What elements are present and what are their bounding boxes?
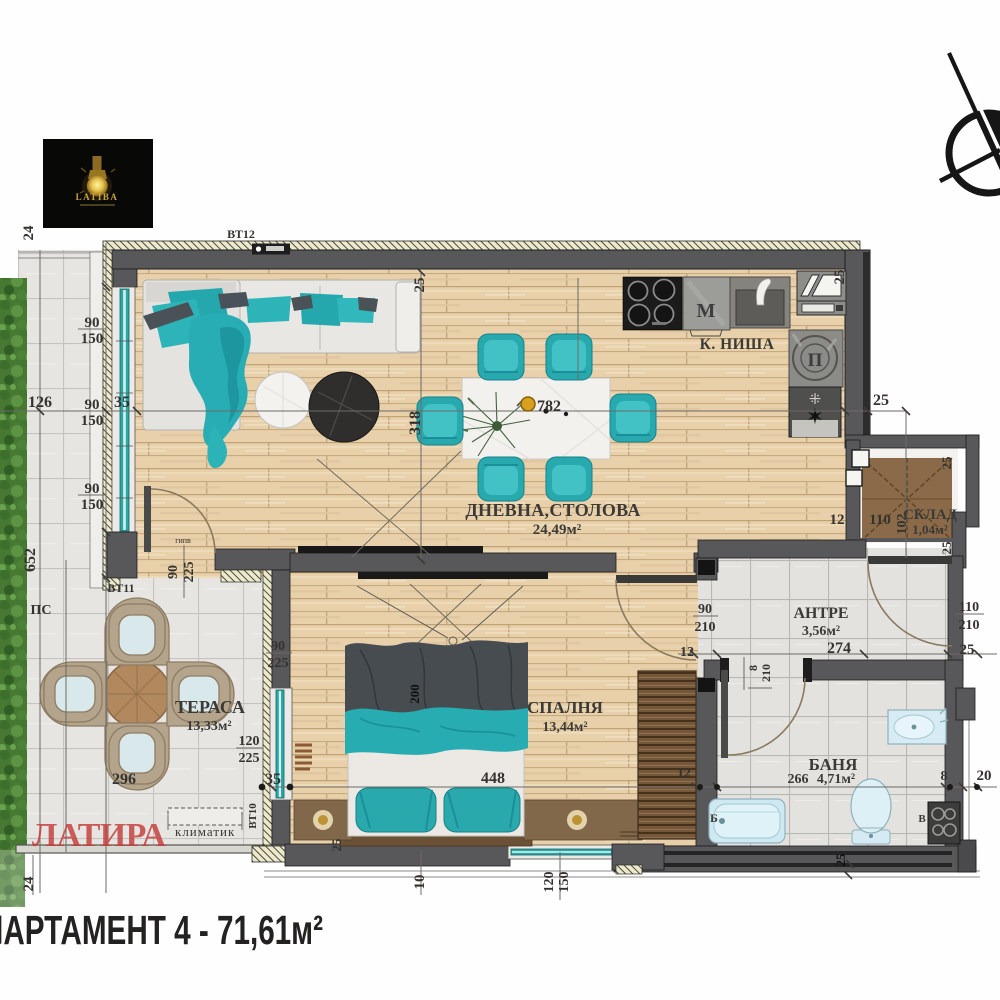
svg-text:652: 652 bbox=[22, 548, 39, 572]
svg-text:24,49м²: 24,49м² bbox=[533, 522, 582, 538]
svg-text:В: В bbox=[918, 813, 926, 825]
svg-text:448: 448 bbox=[481, 770, 505, 787]
svg-text:120: 120 bbox=[542, 872, 557, 893]
svg-text:225: 225 bbox=[239, 751, 260, 766]
svg-text:225: 225 bbox=[182, 562, 197, 583]
svg-text:25: 25 bbox=[412, 278, 428, 293]
svg-text:318: 318 bbox=[407, 411, 424, 435]
svg-text:200: 200 bbox=[407, 684, 422, 704]
svg-text:25: 25 bbox=[939, 541, 954, 555]
svg-text:274: 274 bbox=[827, 640, 851, 657]
svg-text:АНТРЕ: АНТРЕ bbox=[793, 605, 848, 622]
svg-text:90: 90 bbox=[698, 602, 712, 617]
svg-text:25: 25 bbox=[833, 853, 848, 867]
svg-text:120: 120 bbox=[239, 734, 260, 749]
svg-text:12: 12 bbox=[677, 766, 691, 781]
svg-text:782: 782 bbox=[537, 398, 561, 415]
svg-text:35: 35 bbox=[114, 394, 130, 411]
svg-text:ЛАТИРА: ЛАТИРА bbox=[32, 817, 170, 854]
svg-text:8: 8 bbox=[941, 769, 948, 784]
svg-text:25: 25 bbox=[960, 642, 975, 658]
svg-text:90: 90 bbox=[85, 481, 100, 497]
svg-text:150: 150 bbox=[557, 872, 572, 893]
svg-text:110: 110 bbox=[959, 600, 979, 615]
svg-text:90: 90 bbox=[85, 315, 100, 331]
svg-text:150: 150 bbox=[81, 413, 104, 429]
svg-text:20: 20 bbox=[977, 768, 992, 784]
svg-text:126: 126 bbox=[28, 394, 52, 411]
svg-text:3,56м²: 3,56м² bbox=[802, 624, 840, 639]
svg-text:✶: ✶ bbox=[806, 404, 824, 429]
svg-text:10: 10 bbox=[412, 875, 428, 890]
svg-text:13,33м²: 13,33м² bbox=[186, 719, 231, 734]
svg-text:150: 150 bbox=[81, 497, 104, 513]
svg-text:25: 25 bbox=[832, 270, 848, 285]
svg-text:LATIBA: LATIBA bbox=[76, 192, 119, 202]
svg-text:М: М bbox=[697, 300, 716, 322]
svg-text:ВТ11: ВТ11 bbox=[107, 581, 134, 595]
svg-text:296: 296 bbox=[112, 771, 136, 788]
svg-text:ПС: ПС bbox=[31, 603, 52, 618]
svg-text:ВТ10: ВТ10 bbox=[247, 803, 259, 829]
svg-text:225: 225 bbox=[268, 656, 289, 671]
svg-text:ДНЕВНА,СТОЛОВА: ДНЕВНА,СТОЛОВА bbox=[465, 500, 640, 520]
svg-text:ВТ12: ВТ12 bbox=[227, 227, 255, 241]
svg-text:ТЕРАСА: ТЕРАСА bbox=[175, 697, 245, 717]
svg-text:90: 90 bbox=[85, 397, 100, 413]
svg-text:150: 150 bbox=[81, 331, 104, 347]
svg-text:25: 25 bbox=[939, 456, 954, 470]
svg-text:К. НИША: К. НИША bbox=[700, 336, 775, 353]
svg-text:8: 8 bbox=[746, 665, 760, 671]
svg-text:24: 24 bbox=[21, 876, 37, 892]
svg-text:210: 210 bbox=[695, 620, 716, 635]
svg-text:климатик: климатик bbox=[175, 824, 235, 839]
svg-text:гипв: гипв bbox=[175, 536, 191, 545]
svg-text:СКЛАД: СКЛАД bbox=[903, 507, 958, 523]
svg-text:Б: Б bbox=[710, 811, 718, 825]
svg-text:СПАЛНЯ: СПАЛНЯ bbox=[527, 698, 603, 717]
svg-text:25: 25 bbox=[329, 838, 344, 852]
svg-text:35: 35 bbox=[265, 771, 281, 788]
svg-text:4,71м²: 4,71м² bbox=[817, 772, 855, 787]
svg-text:1,04м²: 1,04м² bbox=[912, 522, 948, 537]
svg-text:АПАРТАМЕНТ 4 - 71,61м²: АПАРТАМЕНТ 4 - 71,61м² bbox=[0, 907, 323, 953]
svg-text:210: 210 bbox=[959, 618, 980, 633]
svg-text:210: 210 bbox=[759, 664, 773, 682]
svg-text:110: 110 bbox=[869, 512, 891, 528]
svg-text:266: 266 bbox=[788, 772, 809, 787]
svg-text:П: П bbox=[808, 350, 823, 371]
svg-text:25: 25 bbox=[873, 392, 889, 409]
svg-text:13,44м²: 13,44м² bbox=[542, 720, 587, 735]
svg-text:12: 12 bbox=[680, 645, 694, 660]
svg-text:24: 24 bbox=[21, 225, 37, 241]
svg-text:12: 12 bbox=[830, 512, 845, 528]
svg-text:90: 90 bbox=[271, 639, 285, 654]
svg-text:90: 90 bbox=[166, 565, 181, 579]
